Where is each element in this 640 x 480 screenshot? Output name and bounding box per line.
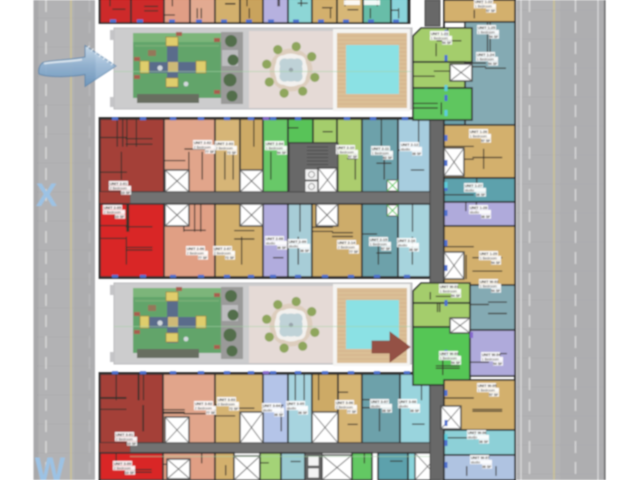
- svg-text:X: X: [36, 177, 58, 213]
- svg-text:W: W: [35, 451, 66, 480]
